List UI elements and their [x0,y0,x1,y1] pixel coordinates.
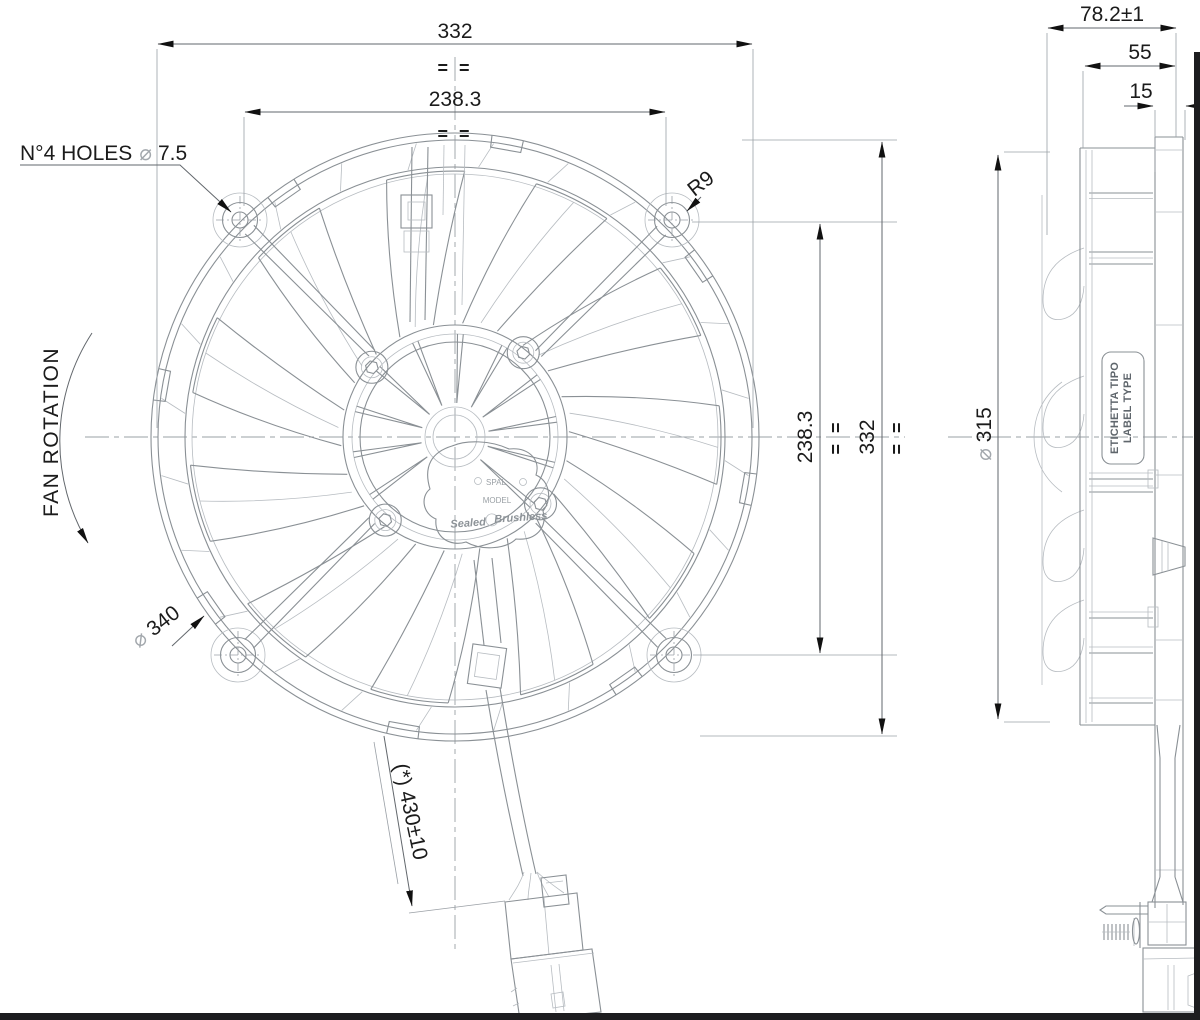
blade-diameter-dim: ⌀315 [973,407,996,461]
outer-diameter-dim: ⌀340 [128,601,184,652]
eq-mark-2: = = [437,124,472,144]
holes-note: N°4 HOLES⌀7.5 [20,142,187,165]
dim-height-outer: 332 [856,419,879,454]
cable-connector-side [1100,725,1196,1012]
dim-width-holes: 238.3 [429,88,482,111]
type-label: ETICHETTA TIPO LABEL TYPE [1102,352,1144,464]
fan-technical-drawing: SPAL MODEL Sealed Brushless [0,0,1200,1020]
dim-depth-total: 78.2±1 [1080,3,1144,26]
fan-rotation-label: FAN ROTATION [40,347,63,517]
eq-mark-4: = = [887,419,907,454]
cable-connector-front [505,872,601,1020]
dimensions: 332 = = 238.3 = = N°4 HOLES⌀7.5 R9 FAN R… [20,3,1199,913]
type-label-line1: ETICHETTA TIPO [1109,362,1121,454]
extension-lines [157,33,1185,913]
rotation-arc [60,333,92,543]
sheet-borders [0,52,1200,1020]
wire-conduit-bottom [467,558,536,876]
dim-depth-motor: 15 [1129,80,1152,103]
screw-threads [1102,924,1130,940]
eq-mark-1: = = [437,58,472,78]
corner-radius-label: R9 [683,167,718,202]
centerlines [85,57,1193,952]
hub-model-text: MODEL [483,496,512,505]
hub-tagline-right: Brushless [494,510,548,526]
side-view-details [1043,150,1182,870]
dim-height-holes: 238.3 [794,411,817,464]
hub-tagline-left: Sealed [450,516,486,530]
hub-brand-text: SPAL [486,478,506,487]
cable-length-dim: (*) 430±10 [389,761,432,862]
dim-width-outer: 332 [437,20,472,43]
drawing-sheet: SPAL MODEL Sealed Brushless [0,0,1200,1020]
side-view: ETICHETTA TIPO LABEL TYPE [1034,137,1196,1012]
dim-depth-body: 55 [1128,41,1151,64]
type-label-line2: LABEL TYPE [1122,373,1134,443]
eq-mark-3: = = [826,419,846,454]
